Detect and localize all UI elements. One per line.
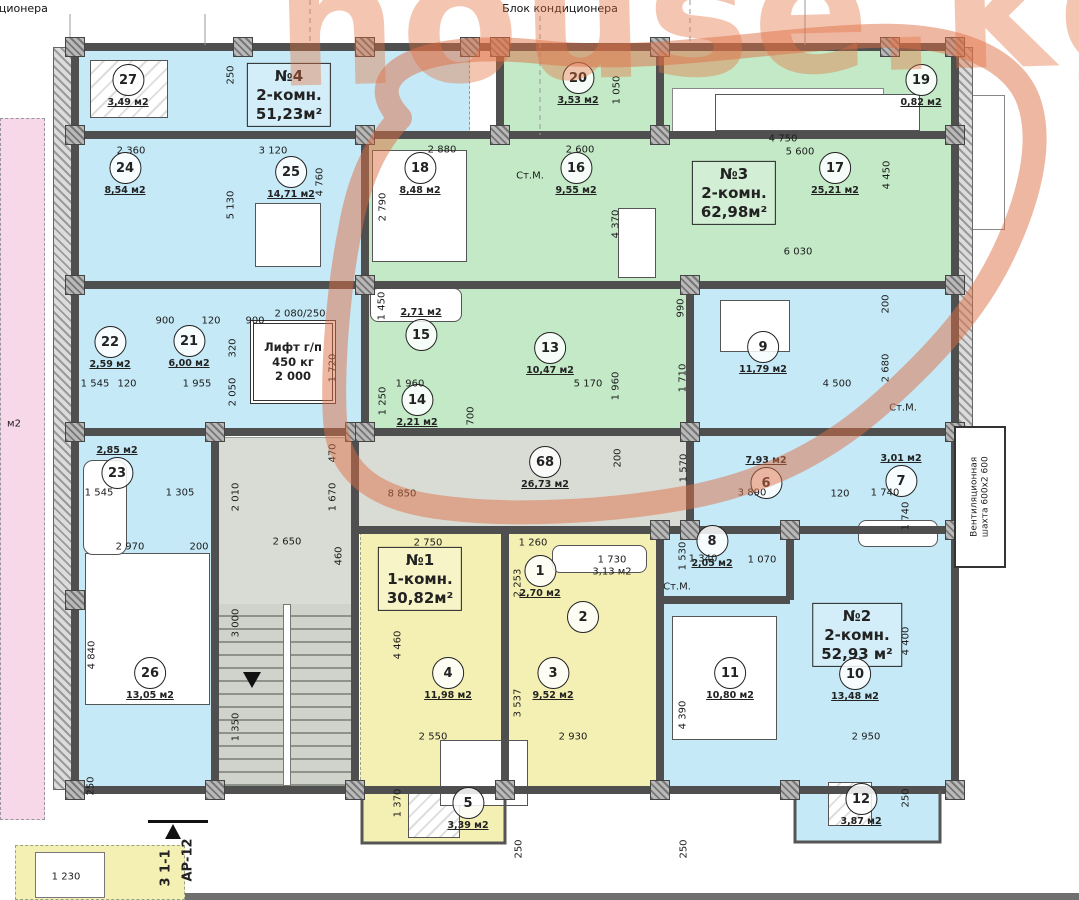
- dim-label: 2 930: [559, 732, 588, 743]
- dim-label: 1 370: [393, 789, 404, 818]
- dim-label: 120: [117, 379, 136, 390]
- room-marker: 21 6,00 м2: [168, 325, 209, 369]
- room-number: 21: [173, 325, 205, 357]
- column: [680, 422, 700, 442]
- apt-1-label: №11-комн.30,82м²: [378, 547, 462, 611]
- room-marker: 3 9,52 м2: [532, 657, 573, 701]
- room-area: 3,53 м2: [557, 95, 598, 106]
- room-marker: 9 11,79 м2: [739, 331, 787, 375]
- column: [205, 780, 225, 800]
- column: [460, 37, 480, 57]
- column: [355, 275, 375, 295]
- room-marker: 13 10,47 м2: [526, 332, 574, 376]
- room-marker: 15 2,71 м2: [400, 307, 441, 351]
- dim-label: 4 760: [315, 168, 326, 197]
- column: [65, 780, 85, 800]
- dim-label: 2 790: [378, 193, 389, 222]
- room-area: 2,71 м2: [400, 307, 441, 318]
- column: [495, 780, 515, 800]
- room-number: 26: [134, 657, 166, 689]
- room-area: 13,05 м2: [126, 690, 174, 701]
- room-number: 68: [529, 446, 561, 478]
- dim-label: 1 720: [328, 354, 339, 383]
- column: [945, 37, 965, 57]
- dim-label: 3 537: [513, 689, 524, 718]
- dim-label: 4 390: [678, 701, 689, 730]
- dim-label: 1 530: [678, 542, 689, 571]
- room-marker: 11 10,80 м2: [706, 657, 754, 701]
- ventilation-shaft: Вентиляционная шахта 600х2 600: [954, 426, 1006, 568]
- section-cut-arrow: [165, 824, 181, 839]
- dim-label: 120: [830, 489, 849, 500]
- dim-label: 250: [514, 839, 525, 858]
- room-number: 8: [696, 525, 728, 557]
- column: [355, 422, 375, 442]
- room-area: 9,55 м2: [555, 185, 596, 196]
- dim-label: 4 450: [882, 161, 893, 190]
- column: [650, 125, 670, 145]
- room-area: 3,87 м2: [840, 816, 881, 827]
- room-area: 25,21 м2: [811, 185, 859, 196]
- room-area: 9,52 м2: [532, 690, 573, 701]
- room-marker: 25 14,71 м2: [267, 156, 315, 200]
- dim-label: 1 955: [183, 379, 212, 390]
- room-marker: 26 13,05 м2: [126, 657, 174, 701]
- dim-label: 900: [155, 316, 174, 327]
- vent-label-line2: шахта 600х2 600: [980, 457, 991, 538]
- room-area: 8,48 м2: [399, 185, 440, 196]
- room-marker: 14 2,21 м2: [396, 384, 437, 428]
- room-number: 24: [109, 152, 141, 184]
- room-marker: 23 2,85 м2: [96, 445, 137, 489]
- ac-unit-label: Блок кондиционера: [502, 2, 618, 15]
- dim-label: 250: [86, 776, 97, 795]
- ac-unit-label: Блок кондиционера: [0, 2, 48, 15]
- dim-label: 4 370: [611, 210, 622, 239]
- column: [780, 780, 800, 800]
- elevator-dim: 2 000: [275, 369, 311, 384]
- dim-label: 1 710: [678, 364, 689, 393]
- room-number: 23: [101, 457, 133, 489]
- dim-label: 1 305: [166, 488, 195, 499]
- room-number: 11: [714, 657, 746, 689]
- dim-label: 4 750: [769, 134, 798, 145]
- room-area: 3,01 м2: [880, 453, 921, 464]
- dim-label: 900: [245, 316, 264, 327]
- room-number: 2: [567, 601, 599, 633]
- elevator-label: Лифт г/п: [264, 340, 322, 355]
- room-number: 12: [845, 783, 877, 815]
- dim-label: 1 250: [378, 387, 389, 416]
- room-marker: 18 8,48 м2: [399, 152, 440, 196]
- room-number: 5: [452, 787, 484, 819]
- room-marker: 2: [567, 601, 599, 633]
- apt-4-label: №42-комн.51,23м²: [247, 63, 331, 127]
- room-area: 7,93 м2: [745, 455, 786, 466]
- room-marker: 17 25,21 м2: [811, 152, 859, 196]
- section-label: 3 1-1: [159, 849, 174, 886]
- dim-label: 3 000: [231, 609, 242, 638]
- room-area: 0,82 м2: [900, 97, 941, 108]
- dim-label: 1 340: [689, 554, 718, 565]
- column: [680, 275, 700, 295]
- dim-label: 2 010: [231, 483, 242, 512]
- floor-plan: Лифт г/п 450 кг 2 000 Вентиляционная шах…: [0, 0, 1079, 900]
- elevator-capacity: 450 кг: [272, 355, 314, 370]
- dim-label: 3,13 м2: [592, 567, 631, 578]
- room-number: 10: [839, 658, 871, 690]
- dim-label: 2 880: [428, 145, 457, 156]
- dim-label: 460: [334, 546, 345, 565]
- room-area: 2,59 м2: [89, 359, 130, 370]
- dim-label: 1 230: [52, 872, 81, 883]
- dim-label: 1 450: [377, 292, 388, 321]
- dim-label: 1 670: [328, 483, 339, 512]
- room-number: 20: [562, 62, 594, 94]
- room-number: 22: [94, 326, 126, 358]
- dim-label: 200: [881, 294, 892, 313]
- room-area: 3,39 м2: [447, 820, 488, 831]
- room-number: 27: [112, 64, 144, 96]
- room-area: 14,71 м2: [267, 189, 315, 200]
- dim-label: 990: [676, 298, 687, 317]
- dim-label: 2 950: [852, 732, 881, 743]
- dim-label: 8 850: [388, 489, 417, 500]
- dim-label: Ст.М.: [889, 403, 917, 414]
- column: [945, 275, 965, 295]
- sheet-label: АР-12: [181, 838, 196, 881]
- dim-label: 3 120: [259, 146, 288, 157]
- dim-label: 2 600: [566, 145, 595, 156]
- room-area: 8,54 м2: [104, 185, 145, 196]
- column: [65, 590, 85, 610]
- dim-label: 2 970: [116, 542, 145, 553]
- dim-label: Ст.М.: [663, 582, 691, 593]
- room-number: 17: [819, 152, 851, 184]
- elevator: Лифт г/п 450 кг 2 000: [250, 320, 336, 404]
- section-cut-line: [148, 820, 208, 823]
- room-area: 6,00 м2: [168, 358, 209, 369]
- dim-label: 250: [901, 788, 912, 807]
- room-area: 13,48 м2: [831, 691, 879, 702]
- room-number: 1: [524, 555, 556, 587]
- dim-label: 250: [226, 65, 237, 84]
- room-area: 10,80 м2: [706, 690, 754, 701]
- column: [490, 37, 510, 57]
- dim-label: 200: [613, 448, 624, 467]
- room-area: 3,49 м2: [107, 97, 148, 108]
- room-marker: 16 9,55 м2: [555, 152, 596, 196]
- room-number: 18: [404, 152, 436, 184]
- dim-label: 1 260: [519, 538, 548, 549]
- dim-label: 120: [201, 316, 220, 327]
- room-number: 3: [537, 657, 569, 689]
- column: [945, 125, 965, 145]
- dim-label: м2: [7, 419, 21, 430]
- dim-label: 470: [328, 443, 339, 462]
- dim-label: 1 350: [231, 713, 242, 742]
- room-number: 4: [432, 657, 464, 689]
- column: [65, 125, 85, 145]
- column: [355, 125, 375, 145]
- dim-label: 4 500: [823, 379, 852, 390]
- apt-3-label: №32-комн.62,98м²: [692, 161, 776, 225]
- column: [65, 37, 85, 57]
- dim-label: 250: [679, 839, 690, 858]
- room-number: 16: [560, 152, 592, 184]
- dim-label: 1 740: [871, 488, 900, 499]
- room-marker: 5 3,39 м2: [447, 787, 488, 831]
- dim-label: 1 960: [396, 379, 425, 390]
- dim-label: 3 890: [738, 488, 767, 499]
- dim-label: 2 550: [419, 732, 448, 743]
- room-marker: 27 3,49 м2: [107, 64, 148, 108]
- room-area: 2,70 м2: [519, 588, 560, 599]
- dim-label: 1 730: [598, 555, 627, 566]
- dim-label: 2 253: [513, 569, 524, 598]
- room-number: 15: [405, 319, 437, 351]
- room-number: 13: [534, 332, 566, 364]
- column: [945, 780, 965, 800]
- dim-label: 5 170: [574, 379, 603, 390]
- dim-label: 320: [228, 338, 239, 357]
- column: [65, 275, 85, 295]
- dim-label: 6 030: [784, 247, 813, 258]
- column: [345, 780, 365, 800]
- column: [205, 422, 225, 442]
- room-number: 25: [275, 156, 307, 188]
- column: [233, 37, 253, 57]
- room-marker: 1 2,70 м2: [519, 555, 560, 599]
- dim-label: 4 460: [393, 631, 404, 660]
- dim-label: 1 050: [612, 76, 623, 105]
- dim-label: 200: [189, 542, 208, 553]
- dim-label: 1 070: [748, 555, 777, 566]
- column: [880, 37, 900, 57]
- room-marker: 22 2,59 м2: [89, 326, 130, 370]
- dim-label: 1 740: [901, 502, 912, 531]
- dim-label: 2 050: [228, 378, 239, 407]
- room-marker: 10 13,48 м2: [831, 658, 879, 702]
- dim-label: 1 960: [611, 372, 622, 401]
- room-number: 9: [747, 331, 779, 363]
- room-number: 19: [905, 64, 937, 96]
- room-area: 2,21 м2: [396, 417, 437, 428]
- room-marker: 68 26,73 м2: [521, 446, 569, 490]
- dim-label: 2 680: [881, 354, 892, 383]
- dim-label: 1 545: [85, 488, 114, 499]
- room-area: 26,73 м2: [521, 479, 569, 490]
- room-marker: 20 3,53 м2: [557, 62, 598, 106]
- room-marker: 12 3,87 м2: [840, 783, 881, 827]
- room-area: 11,98 м2: [424, 690, 472, 701]
- stair-direction-arrow: [243, 672, 261, 688]
- column: [650, 780, 670, 800]
- dim-label: 4 840: [87, 641, 98, 670]
- dim-label: Ст.М.: [516, 171, 544, 182]
- room-area: 2,85 м2: [96, 445, 137, 456]
- column: [355, 37, 375, 57]
- column: [650, 37, 670, 57]
- dim-label: 2 360: [117, 146, 146, 157]
- vent-label-line1: Вентиляционная: [969, 457, 980, 538]
- dim-label: 4 400: [901, 627, 912, 656]
- dim-label: 2 650: [273, 537, 302, 548]
- dim-label: 1 545: [81, 379, 110, 390]
- room-area: 10,47 м2: [526, 365, 574, 376]
- column: [65, 422, 85, 442]
- dim-label: 2 750: [414, 538, 443, 549]
- column: [650, 520, 670, 540]
- dim-label: 5 130: [226, 191, 237, 220]
- room-marker: 4 11,98 м2: [424, 657, 472, 701]
- room-area: 11,79 м2: [739, 364, 787, 375]
- room-marker: 19 0,82 м2: [900, 64, 941, 108]
- column: [490, 125, 510, 145]
- room-marker: 24 8,54 м2: [104, 152, 145, 196]
- dim-label: 5 600: [786, 147, 815, 158]
- column: [780, 520, 800, 540]
- dim-label: 2 080/250: [274, 309, 325, 320]
- dim-label: 700: [466, 406, 477, 425]
- dim-label: 1 570: [679, 454, 690, 483]
